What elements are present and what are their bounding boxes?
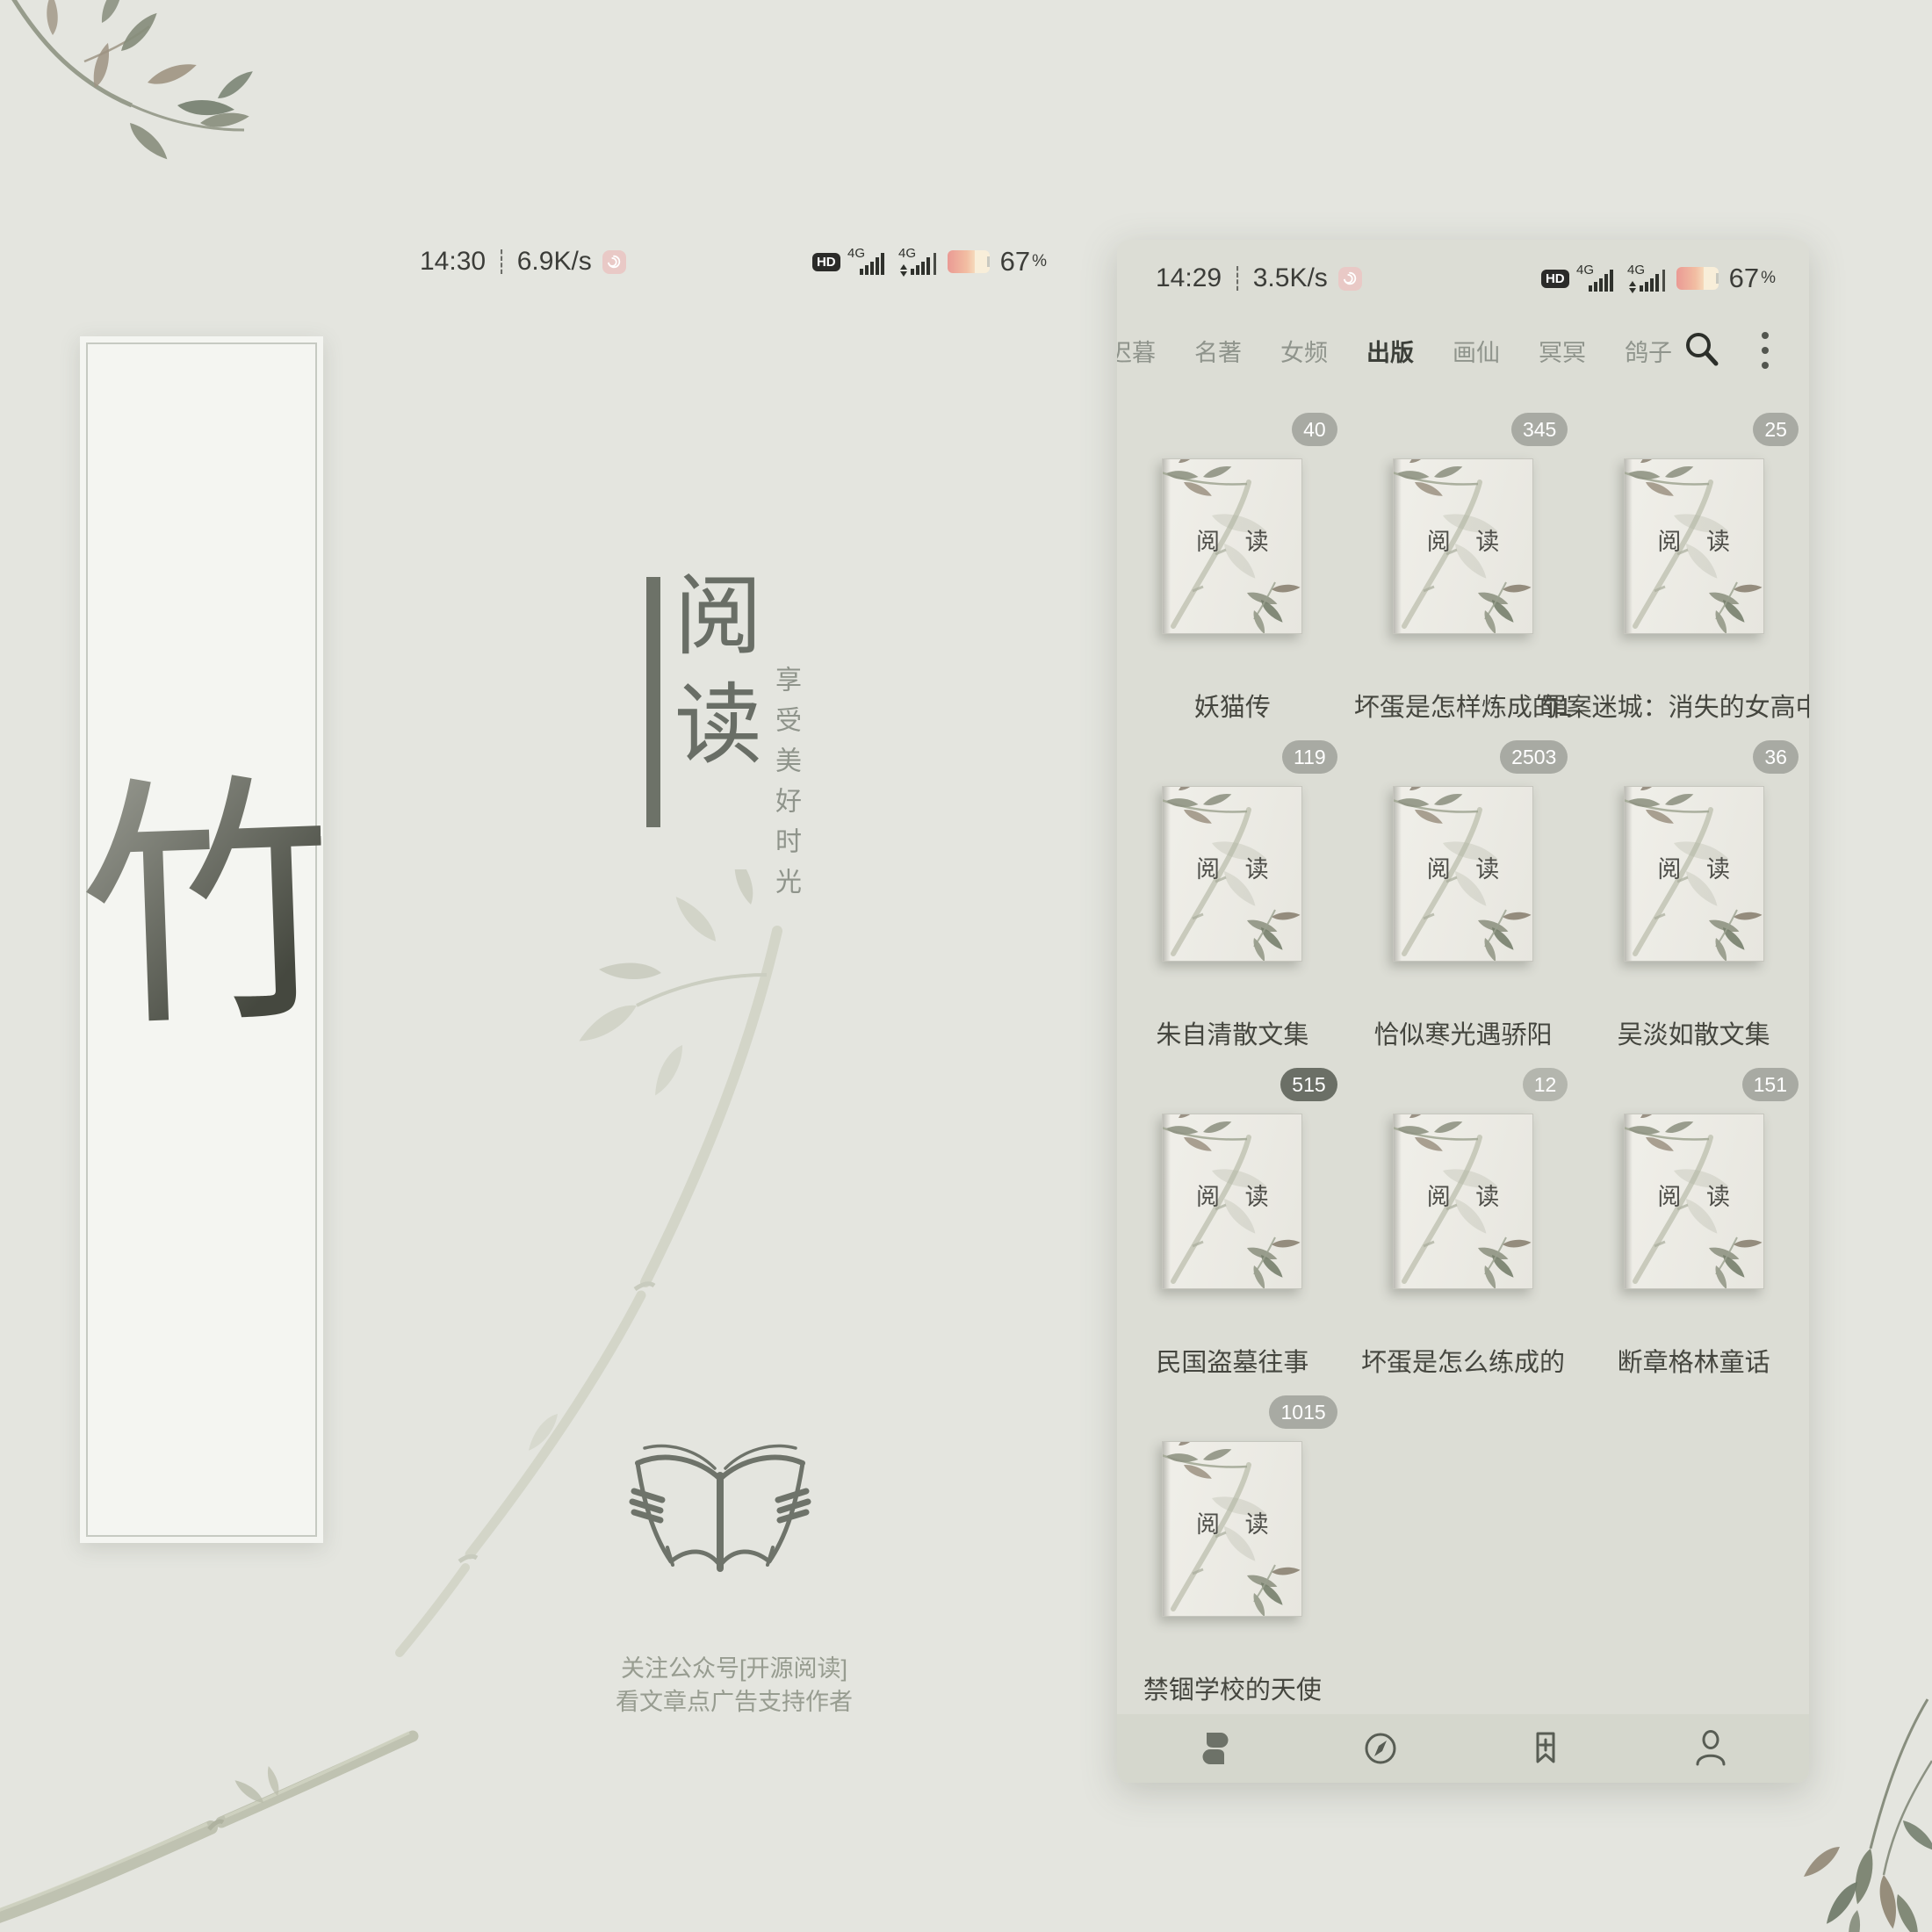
network-speed: 6.9K/s	[517, 247, 592, 277]
tab-mingzhu[interactable]: 名著	[1194, 331, 1242, 370]
svg-text:4G: 4G	[1627, 263, 1645, 278]
cover-art-title: 阅 读	[1625, 1178, 1763, 1212]
phone-clock: 14:29	[1156, 263, 1222, 293]
status-separator: ┊	[494, 249, 508, 276]
book-count-badge: 12	[1523, 1068, 1568, 1101]
book-cover[interactable]: 阅 读	[1624, 1114, 1764, 1289]
book-title[interactable]: 民国盗墓往事	[1156, 1342, 1308, 1379]
signal-sim2-icon: 4G	[1624, 263, 1668, 294]
battery-percent: 67	[1729, 263, 1759, 294]
book-item: 40 阅 读 妖猫传	[1117, 404, 1348, 732]
app-title: 阅 读	[664, 562, 773, 780]
calligraphy-scroll: 竹	[80, 336, 323, 1543]
cover-art-title: 阅 读	[1394, 1178, 1532, 1212]
battery-icon	[948, 250, 990, 273]
battery-percent-sign: %	[1032, 252, 1047, 271]
screenshot-root: 14:30 ┊ 6.9K/s HD 4G 4G 67 % 竹	[0, 0, 1932, 1932]
book-grid: 40 阅 读 妖猫传 345 阅 读 坏蛋是怎样炼成的1 25	[1117, 404, 1809, 1714]
wallpaper-status-bar: 14:30 ┊ 6.9K/s HD 4G 4G 67 %	[420, 242, 1047, 281]
book-cover[interactable]: 阅 读	[1624, 786, 1764, 962]
status-separator: ┊	[1230, 265, 1244, 292]
app-title-char-top: 阅	[664, 562, 773, 671]
battery-percent: 67	[1000, 246, 1030, 278]
reader-app-screenshot: 14:29 ┊ 3.5K/s HD 4G 4G	[1117, 240, 1809, 1783]
book-item: 345 阅 读 坏蛋是怎样炼成的1	[1348, 404, 1579, 732]
book-count-badge: 515	[1280, 1068, 1337, 1101]
compass-icon[interactable]	[1359, 1727, 1402, 1770]
phone-status-bar: 14:29 ┊ 3.5K/s HD 4G 4G	[1156, 259, 1776, 298]
bookshelf-icon[interactable]	[1194, 1727, 1236, 1770]
bamboo-branch-top-left-decoration	[0, 0, 299, 263]
cover-art-title: 阅 读	[1163, 1178, 1301, 1212]
book-title[interactable]: 妖猫传	[1194, 687, 1271, 724]
book-count-badge: 1015	[1269, 1395, 1337, 1429]
book-item: 2503 阅 读 恰似寒光遇骄阳	[1348, 732, 1579, 1059]
book-count-badge: 119	[1282, 740, 1337, 774]
hd-badge-icon: HD	[812, 253, 840, 271]
signal-sim2-icon: 4G	[895, 246, 939, 278]
notification-spiral-icon	[602, 250, 626, 274]
category-tab-bar: 迟暮 名著 女频 出版 画仙 冥冥 鸽子	[1117, 331, 1675, 370]
svg-text:4G: 4G	[1576, 263, 1594, 278]
book-item: 25 阅 读 罪案迷城：消失的女高中生	[1578, 404, 1809, 732]
signal-sim1-icon: 4G	[1576, 263, 1617, 294]
tab-chuban-active[interactable]: 出版	[1366, 331, 1414, 370]
tab-mingming[interactable]: 冥冥	[1539, 331, 1586, 370]
book-cover[interactable]: 阅 读	[1162, 1441, 1302, 1617]
search-icon[interactable]	[1683, 329, 1721, 368]
book-title[interactable]: 禁锢学校的天使	[1143, 1669, 1322, 1706]
cover-art-title: 阅 读	[1163, 523, 1301, 557]
book-cover[interactable]: 阅 读	[1162, 458, 1302, 634]
book-title[interactable]: 朱自清散文集	[1156, 1014, 1308, 1051]
book-title[interactable]: 坏蛋是怎么练成的	[1361, 1342, 1565, 1379]
footer-line2: 看文章点广告支持作者	[594, 1686, 875, 1719]
tab-nvpin[interactable]: 女频	[1280, 331, 1328, 370]
person-icon[interactable]	[1690, 1727, 1732, 1770]
book-title[interactable]: 吴淡如散文集	[1618, 1014, 1770, 1051]
book-item: 36 阅 读 吴淡如散文集	[1578, 732, 1809, 1059]
hd-badge-icon: HD	[1541, 270, 1569, 288]
book-cover[interactable]: 阅 读	[1393, 1114, 1533, 1289]
bookmark-add-icon[interactable]	[1525, 1727, 1567, 1770]
book-cover[interactable]: 阅 读	[1393, 786, 1533, 962]
tab-chimu[interactable]: 迟暮	[1117, 331, 1156, 370]
book-item: 119 阅 读 朱自清散文集	[1117, 732, 1348, 1059]
battery-icon	[1676, 267, 1719, 290]
tab-gezi[interactable]: 鸽子	[1625, 331, 1672, 370]
cover-art-title: 阅 读	[1394, 523, 1532, 557]
book-count-badge: 151	[1742, 1068, 1799, 1101]
svg-text:4G: 4G	[898, 246, 916, 261]
book-cover[interactable]: 阅 读	[1393, 458, 1533, 634]
svg-text:4G: 4G	[847, 246, 865, 261]
tab-huaxian[interactable]: 画仙	[1453, 331, 1500, 370]
open-book-logo	[627, 1440, 813, 1582]
cover-art-title: 阅 读	[1163, 1505, 1301, 1539]
book-item: 12 阅 读 坏蛋是怎么练成的	[1348, 1059, 1579, 1387]
book-count-badge: 40	[1292, 413, 1337, 446]
app-title-char-bottom: 读	[664, 671, 773, 780]
book-title[interactable]: 恰似寒光遇骄阳	[1373, 1014, 1552, 1051]
footer-line1: 关注公众号[开源阅读]	[594, 1653, 875, 1686]
kebab-menu-icon[interactable]	[1762, 331, 1772, 370]
bottom-nav-bar	[1117, 1714, 1809, 1783]
book-count-badge: 2503	[1500, 740, 1568, 774]
book-title[interactable]: 罪案迷城：消失的女高中生	[1541, 687, 1809, 724]
title-accent-bar	[646, 577, 660, 827]
book-count-badge: 36	[1753, 740, 1799, 774]
cover-art-title: 阅 读	[1625, 523, 1763, 557]
slogan-vertical-text: 享受美好时光	[766, 666, 804, 908]
footer-note: 关注公众号[开源阅读] 看文章点广告支持作者	[594, 1653, 875, 1719]
network-speed: 3.5K/s	[1253, 263, 1328, 293]
book-cover[interactable]: 阅 读	[1162, 1114, 1302, 1289]
book-cover[interactable]: 阅 读	[1624, 458, 1764, 634]
bamboo-stalk-faint-center-decoration	[338, 869, 830, 1669]
book-item: 1015 阅 读 禁锢学校的天使	[1117, 1387, 1348, 1714]
book-count-badge: 25	[1753, 413, 1799, 446]
book-item: 515 阅 读 民国盗墓往事	[1117, 1059, 1348, 1387]
cover-art-title: 阅 读	[1163, 850, 1301, 884]
bamboo-stalk-bottom-left-decoration	[0, 1655, 422, 1932]
book-item: 151 阅 读 断章格林童话	[1578, 1059, 1809, 1387]
wallpaper-clock: 14:30	[420, 247, 486, 277]
cover-art-title: 阅 读	[1394, 850, 1532, 884]
book-cover[interactable]: 阅 读	[1162, 786, 1302, 962]
book-title[interactable]: 断章格林童话	[1618, 1342, 1770, 1379]
signal-sim1-icon: 4G	[847, 246, 888, 278]
bamboo-character: 竹	[76, 771, 328, 1042]
battery-percent-sign: %	[1761, 269, 1776, 288]
notification-spiral-icon	[1338, 267, 1362, 291]
cover-art-title: 阅 读	[1625, 850, 1763, 884]
book-count-badge: 345	[1511, 413, 1568, 446]
book-title[interactable]: 坏蛋是怎样炼成的1	[1354, 687, 1572, 724]
